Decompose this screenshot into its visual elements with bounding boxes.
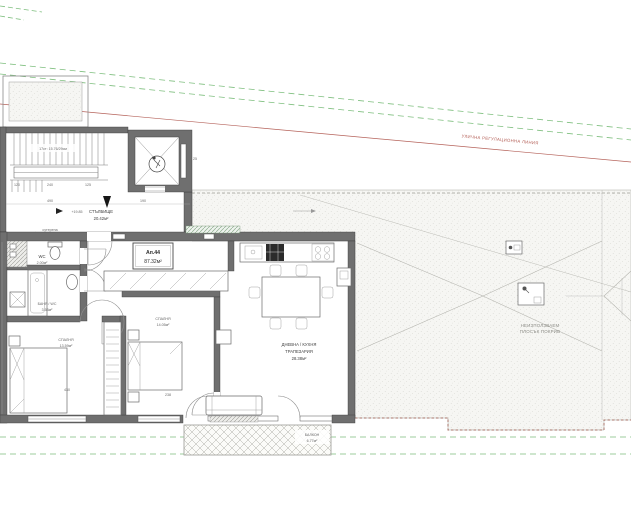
- dining-chair: [322, 287, 333, 298]
- stairwell-block: 17ст: 15.76/29см 120 240 125 490 190 25 …: [0, 127, 197, 239]
- floor-plan-canvas: УЛИЧНА РЕГУЛАЦИОННА ЛИНИЯ: [0, 0, 631, 521]
- apartment-top-wall: [0, 232, 355, 241]
- hall-wardrobe: [104, 271, 228, 291]
- bath-bedroom1-wall: [7, 316, 80, 322]
- dim-430: 430: [64, 388, 70, 392]
- bedroom2: СПАЛНЯ 14.05м² 238: [128, 317, 182, 402]
- bedroom1: СПАЛНЯ 13.59м² 430: [9, 322, 121, 415]
- sofa: [206, 396, 262, 415]
- wheelchair-icon: [149, 156, 165, 172]
- dining-chair: [270, 265, 281, 276]
- apartment-right-wall: [348, 241, 355, 418]
- level-mark-flag: [56, 208, 63, 214]
- bath-area: 3.53м²: [42, 308, 53, 312]
- balcony-name: БАЛКОН: [305, 433, 320, 437]
- dim-stair-125: 125: [85, 183, 91, 187]
- elevator-counterweight: [181, 144, 186, 178]
- green-dash-corner-2: [0, 16, 24, 20]
- stairwell-room-label: СТЪЛБИЩЕ: [89, 209, 113, 214]
- bath-door-arc: [84, 269, 106, 291]
- apartment-number: Ап.44: [146, 250, 160, 256]
- living-name-line1: ДНЕВНА / КУХНЯ: [282, 342, 317, 347]
- dim-238: 238: [165, 393, 171, 397]
- bath-sink: [67, 275, 78, 290]
- elevator: [128, 130, 192, 192]
- dining-table: [262, 277, 320, 317]
- balcony-threshold: [210, 416, 258, 422]
- roof-drain-1: [506, 241, 522, 254]
- bedroom2-name: СПАЛНЯ: [155, 317, 171, 321]
- kitchen-oven: [266, 244, 284, 261]
- bathroom: БАНЯ / WC 3.53м²: [10, 270, 78, 316]
- insulated-wall-strip: [186, 226, 240, 233]
- bedroom1-bed: [10, 348, 67, 413]
- dim-25: 25: [193, 157, 197, 161]
- living-room: ДНЕВНА / КУХНЯ ТРАПЕЗАРИЯ 28.38м²: [206, 243, 351, 415]
- stairwell-area-label: 20.42м²: [94, 216, 109, 221]
- balcony-area: 6.77м²: [307, 439, 318, 443]
- stair-flights: [10, 133, 108, 192]
- bedroom1-area: 13.59м²: [60, 344, 73, 348]
- bath-door-opening: [80, 276, 87, 292]
- fridge: [337, 268, 351, 286]
- bedroom2-area: 14.05м²: [157, 323, 170, 327]
- hall: Ап.44 87.32м²: [104, 243, 228, 291]
- bedroom2-nightstand-1: [128, 330, 139, 340]
- bedroom2-bed: [128, 342, 182, 390]
- bedroom2-top-wall: [122, 291, 220, 297]
- floor-plan-drawing: УЛИЧНА РЕГУЛАЦИОННА ЛИНИЯ: [0, 0, 631, 521]
- apartment-left-wall: [0, 232, 7, 423]
- apartment-area: 87.32м²: [144, 259, 162, 265]
- bedroom1-wardrobe: [104, 322, 121, 415]
- green-regulation-line-1: [0, 63, 631, 129]
- living-name-line2: ТРАПЕЗАРИЯ: [285, 349, 313, 354]
- apartment-bottom-wall-right: [332, 415, 355, 423]
- apartment-label-box: [133, 243, 173, 269]
- stair-steps-note: 17ст: 15.76/29см: [39, 147, 67, 151]
- bedroom2-nightstand-2: [128, 392, 139, 402]
- dim-stair-120: 120: [14, 183, 20, 187]
- basement-note: сутерена: [42, 228, 57, 232]
- entry-door-opening: [87, 232, 111, 241]
- toilet-bowl: [50, 247, 60, 260]
- flat-roof-area: НЕИЗПОЛЗВАЕМ ПЛОСЪК ПОКРИВ: [192, 190, 631, 430]
- tv-cabinet: [216, 330, 231, 344]
- stair-left-wall: [0, 127, 6, 232]
- balcony: БАЛКОН 6.77м²: [184, 425, 331, 455]
- dining-chair: [249, 287, 260, 298]
- dim-490: 490: [47, 199, 53, 203]
- living-window-2: [300, 416, 332, 421]
- dining-chair: [296, 318, 307, 329]
- dim-stair-240: 240: [47, 183, 53, 187]
- street-regulation-label: УЛИЧНА РЕГУЛАЦИОННА ЛИНИЯ: [461, 133, 539, 145]
- section-arrow: [103, 196, 111, 208]
- wall-vent-1: [113, 234, 125, 239]
- wc-name: WC: [39, 254, 46, 259]
- wc-door-opening: [80, 248, 87, 264]
- entry-door-arc: [88, 241, 112, 265]
- roof-surface: [192, 190, 631, 430]
- wc-room: WC 2.00м²: [37, 242, 62, 265]
- living-area: 28.38м²: [292, 356, 307, 361]
- wall-vent-2: [204, 234, 214, 239]
- green-dash-corner-1: [0, 6, 42, 12]
- roof-note-line2: ПЛОСЪК ПОКРИВ: [520, 329, 560, 334]
- bedroom1-nightstand: [9, 336, 20, 346]
- balcony-door-arc-2: [278, 396, 300, 418]
- dining-chair: [296, 265, 307, 276]
- corridor-kitchen-wall: [228, 241, 234, 271]
- bath-name: БАНЯ / WC: [38, 302, 57, 306]
- stair-top-wall: [0, 127, 128, 133]
- light-shaft-inner: [9, 82, 82, 121]
- dim-190: 190: [140, 199, 146, 203]
- bedroom1-name: СПАЛНЯ: [58, 338, 74, 342]
- dining-chair: [270, 318, 281, 329]
- level-mark: +19.85: [71, 210, 82, 214]
- wc-area: 2.00м²: [37, 261, 48, 265]
- roof-drain-2: [518, 283, 544, 305]
- light-shaft: [3, 76, 88, 127]
- roof-note-line1: НЕИЗПОЛЗВАЕМ: [521, 323, 560, 328]
